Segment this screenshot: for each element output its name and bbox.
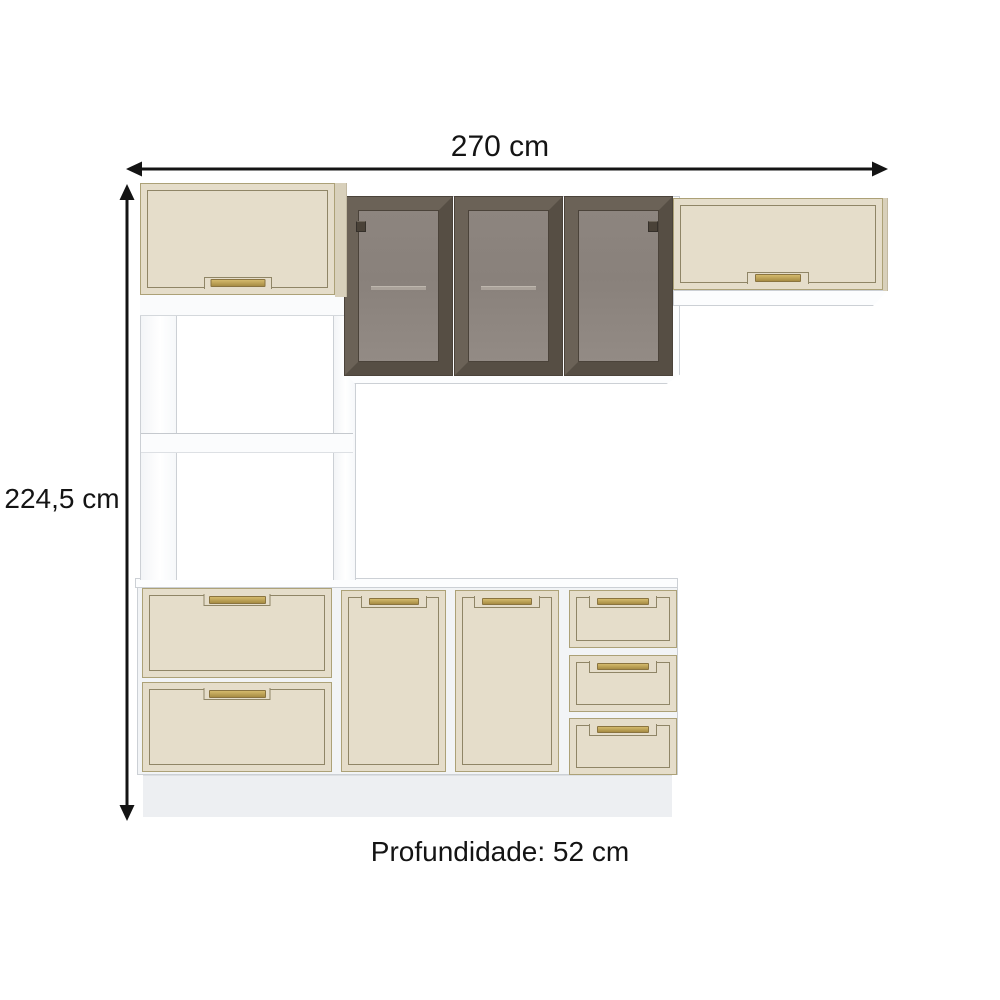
height-dimension-label: 224,5 cm <box>0 483 124 515</box>
depth-dimension-label: Profundidade: 52 cm <box>290 836 710 868</box>
width-dimension-label: 270 cm <box>385 130 615 164</box>
product-dimension-diagram: 270 cm 224,5 cm Profundidade: 52 cm <box>0 0 1000 1000</box>
